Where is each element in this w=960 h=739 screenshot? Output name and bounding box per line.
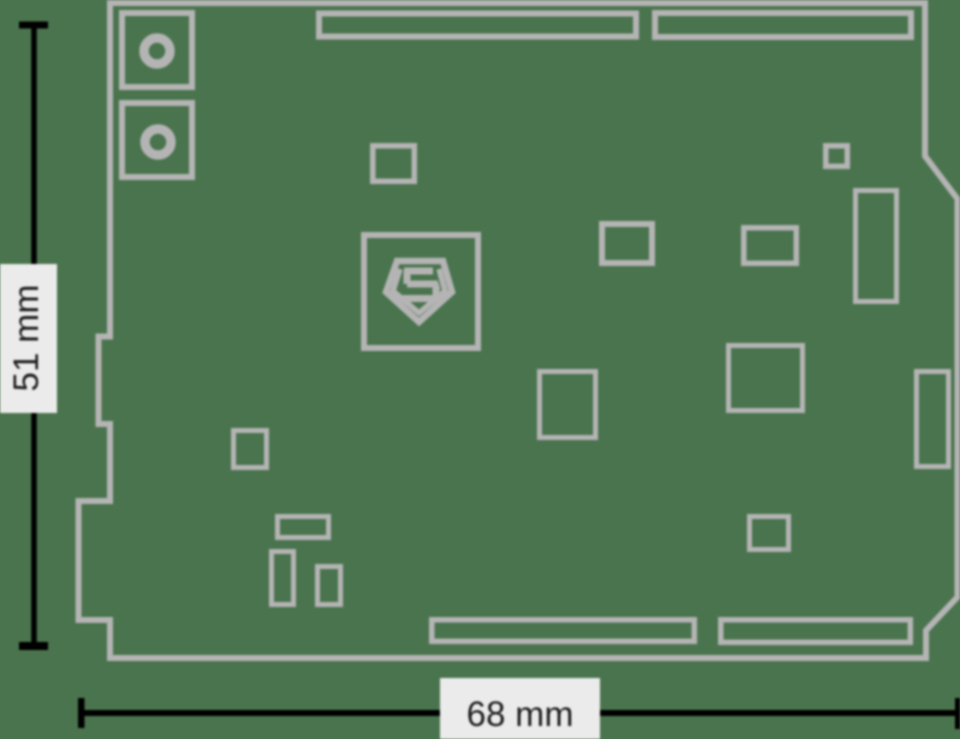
svg-text:68 mm: 68 mm [467, 695, 574, 734]
svg-text:51 mm: 51 mm [7, 285, 46, 392]
